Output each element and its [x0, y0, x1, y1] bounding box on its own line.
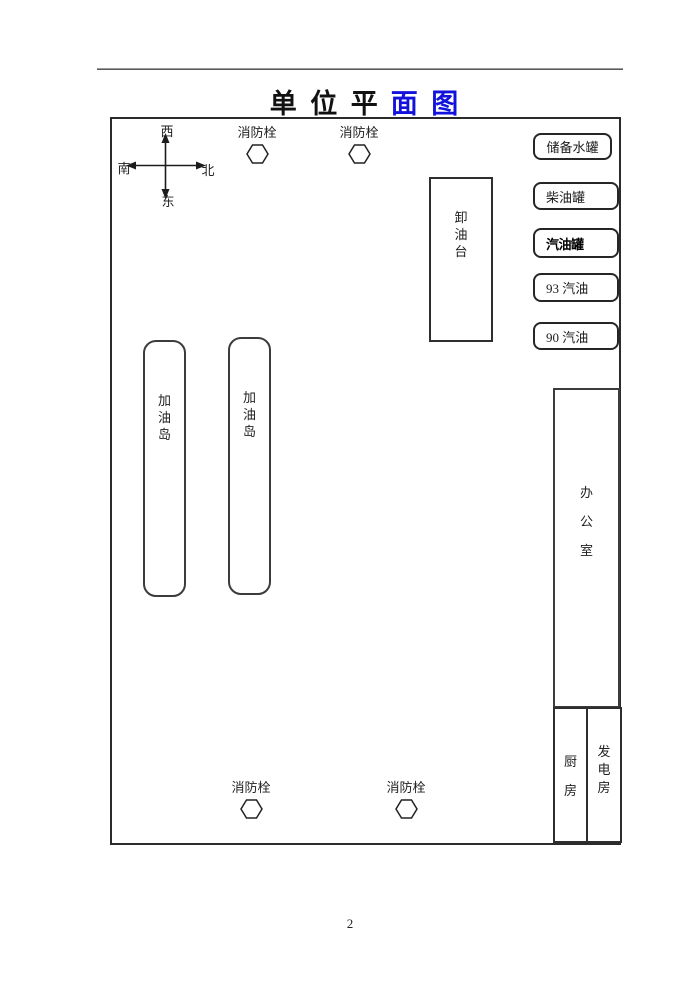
office-room: 办公室	[553, 388, 620, 708]
kitchen-label: 厨房	[563, 709, 578, 805]
tank-label: 90 汽油	[546, 327, 588, 346]
tank-gasoline: 汽油罐	[533, 228, 619, 258]
fire-hydrant-label: 消防栓	[222, 777, 280, 796]
fire-hydrant-icon	[240, 799, 263, 819]
service-rooms: 厨房 发电房	[553, 707, 622, 843]
tank-93-gasoline: 93 汽油	[533, 273, 619, 302]
fuel-island-label: 加油岛	[242, 339, 257, 440]
fire-hydrant-bottom-left: 消防栓	[222, 777, 280, 819]
compass: 西 南 北 东	[114, 121, 218, 213]
unloading-platform: 卸油台	[429, 177, 493, 342]
fire-hydrant-icon	[246, 144, 269, 164]
fire-hydrant-bottom-right: 消防栓	[377, 777, 435, 819]
page-title-blue: 面 图	[391, 89, 462, 119]
generator-room: 发电房	[586, 709, 620, 841]
kitchen-room: 厨房	[555, 709, 586, 841]
tank-reserve-water: 储备水罐	[533, 133, 612, 160]
unloading-platform-label: 卸油台	[454, 179, 469, 260]
tank-diesel: 柴油罐	[533, 182, 619, 210]
compass-east-label: 东	[160, 191, 176, 210]
fire-hydrant-label: 消防栓	[377, 777, 435, 796]
site-plan-border: 西 南 北 东 消防栓 消防栓 卸油台 加油岛 加油岛	[110, 117, 621, 845]
header-rule	[97, 68, 623, 70]
compass-west-label: 西	[159, 121, 175, 140]
fire-hydrant-label: 消防栓	[330, 122, 388, 141]
compass-south-label: 南	[116, 158, 132, 177]
tank-label: 汽油罐	[546, 234, 584, 253]
page-title: 单 位 平面 图	[110, 82, 621, 121]
tank-90-gasoline: 90 汽油	[533, 322, 619, 350]
fire-hydrant-icon	[395, 799, 418, 819]
page-number: 2	[0, 916, 700, 932]
fire-hydrant-icon	[348, 144, 371, 164]
tank-label: 储备水罐	[546, 137, 598, 156]
fire-hydrant-top-left: 消防栓	[228, 122, 286, 164]
fuel-island-label: 加油岛	[157, 342, 172, 443]
generator-room-label: 发电房	[597, 709, 612, 797]
tank-label: 93 汽油	[546, 278, 588, 297]
fuel-island-1: 加油岛	[143, 340, 186, 597]
page-title-black: 单 位 平	[270, 89, 381, 119]
fire-hydrant-top-right: 消防栓	[330, 122, 388, 164]
compass-north-label: 北	[200, 160, 216, 179]
document-page: 单 位 平面 图 西 南 北 东 消防栓 消防栓	[0, 0, 700, 990]
fuel-island-2: 加油岛	[228, 337, 271, 595]
fire-hydrant-label: 消防栓	[228, 122, 286, 141]
office-label: 办公室	[579, 390, 594, 565]
tank-label: 柴油罐	[546, 187, 585, 206]
